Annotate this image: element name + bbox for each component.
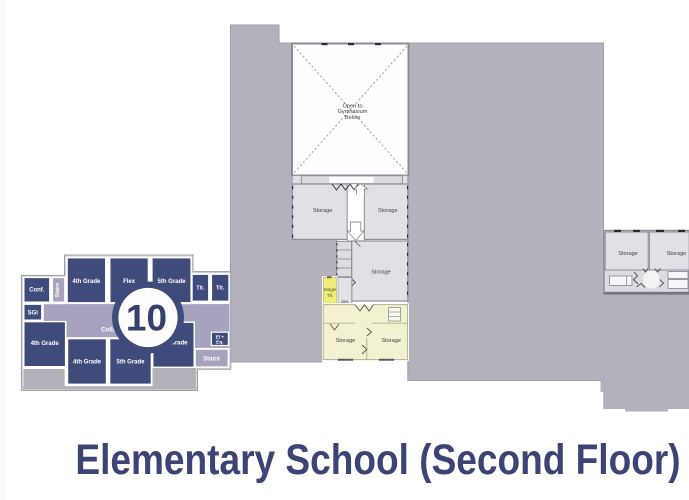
svg-text:Stairs: Stairs — [55, 283, 61, 298]
svg-text:Flex: Flex — [123, 279, 136, 285]
svg-text:Tlt.: Tlt. — [216, 286, 225, 292]
svg-text:Storage: Storage — [381, 338, 401, 344]
svg-text:10: 10 — [126, 298, 167, 339]
svg-text:4th Grade: 4th Grade — [31, 341, 60, 347]
svg-text:Storage: Storage — [371, 270, 391, 276]
svg-text:Storage: Storage — [667, 251, 687, 257]
svg-text:Tlt.: Tlt. — [327, 293, 334, 298]
svg-text:4th Grade: 4th Grade — [73, 360, 102, 366]
svg-text:Storage: Storage — [378, 208, 398, 214]
svg-text:5th Grade: 5th Grade — [116, 360, 145, 366]
svg-text:Eq.: Eq. — [216, 340, 223, 346]
svg-text:Below: Below — [345, 115, 361, 121]
svg-text:El +: El + — [216, 334, 225, 340]
svg-text:SGI: SGI — [28, 310, 39, 316]
svg-text:4th Grade: 4th Grade — [72, 279, 101, 285]
svg-text:Stairs: Stairs — [203, 357, 220, 363]
svg-text:Storage: Storage — [336, 338, 356, 344]
svg-text:Single: Single — [323, 287, 336, 292]
svg-text:5th Grade: 5th Grade — [157, 279, 186, 285]
svg-text:Storage: Storage — [618, 251, 638, 257]
svg-text:Storage: Storage — [313, 208, 333, 214]
svg-text:Conf.: Conf. — [29, 288, 45, 294]
svg-text:Tlt.: Tlt. — [196, 286, 205, 292]
svg-text:Elementary School (Second Floo: Elementary School (Second Floor) — [75, 435, 680, 483]
